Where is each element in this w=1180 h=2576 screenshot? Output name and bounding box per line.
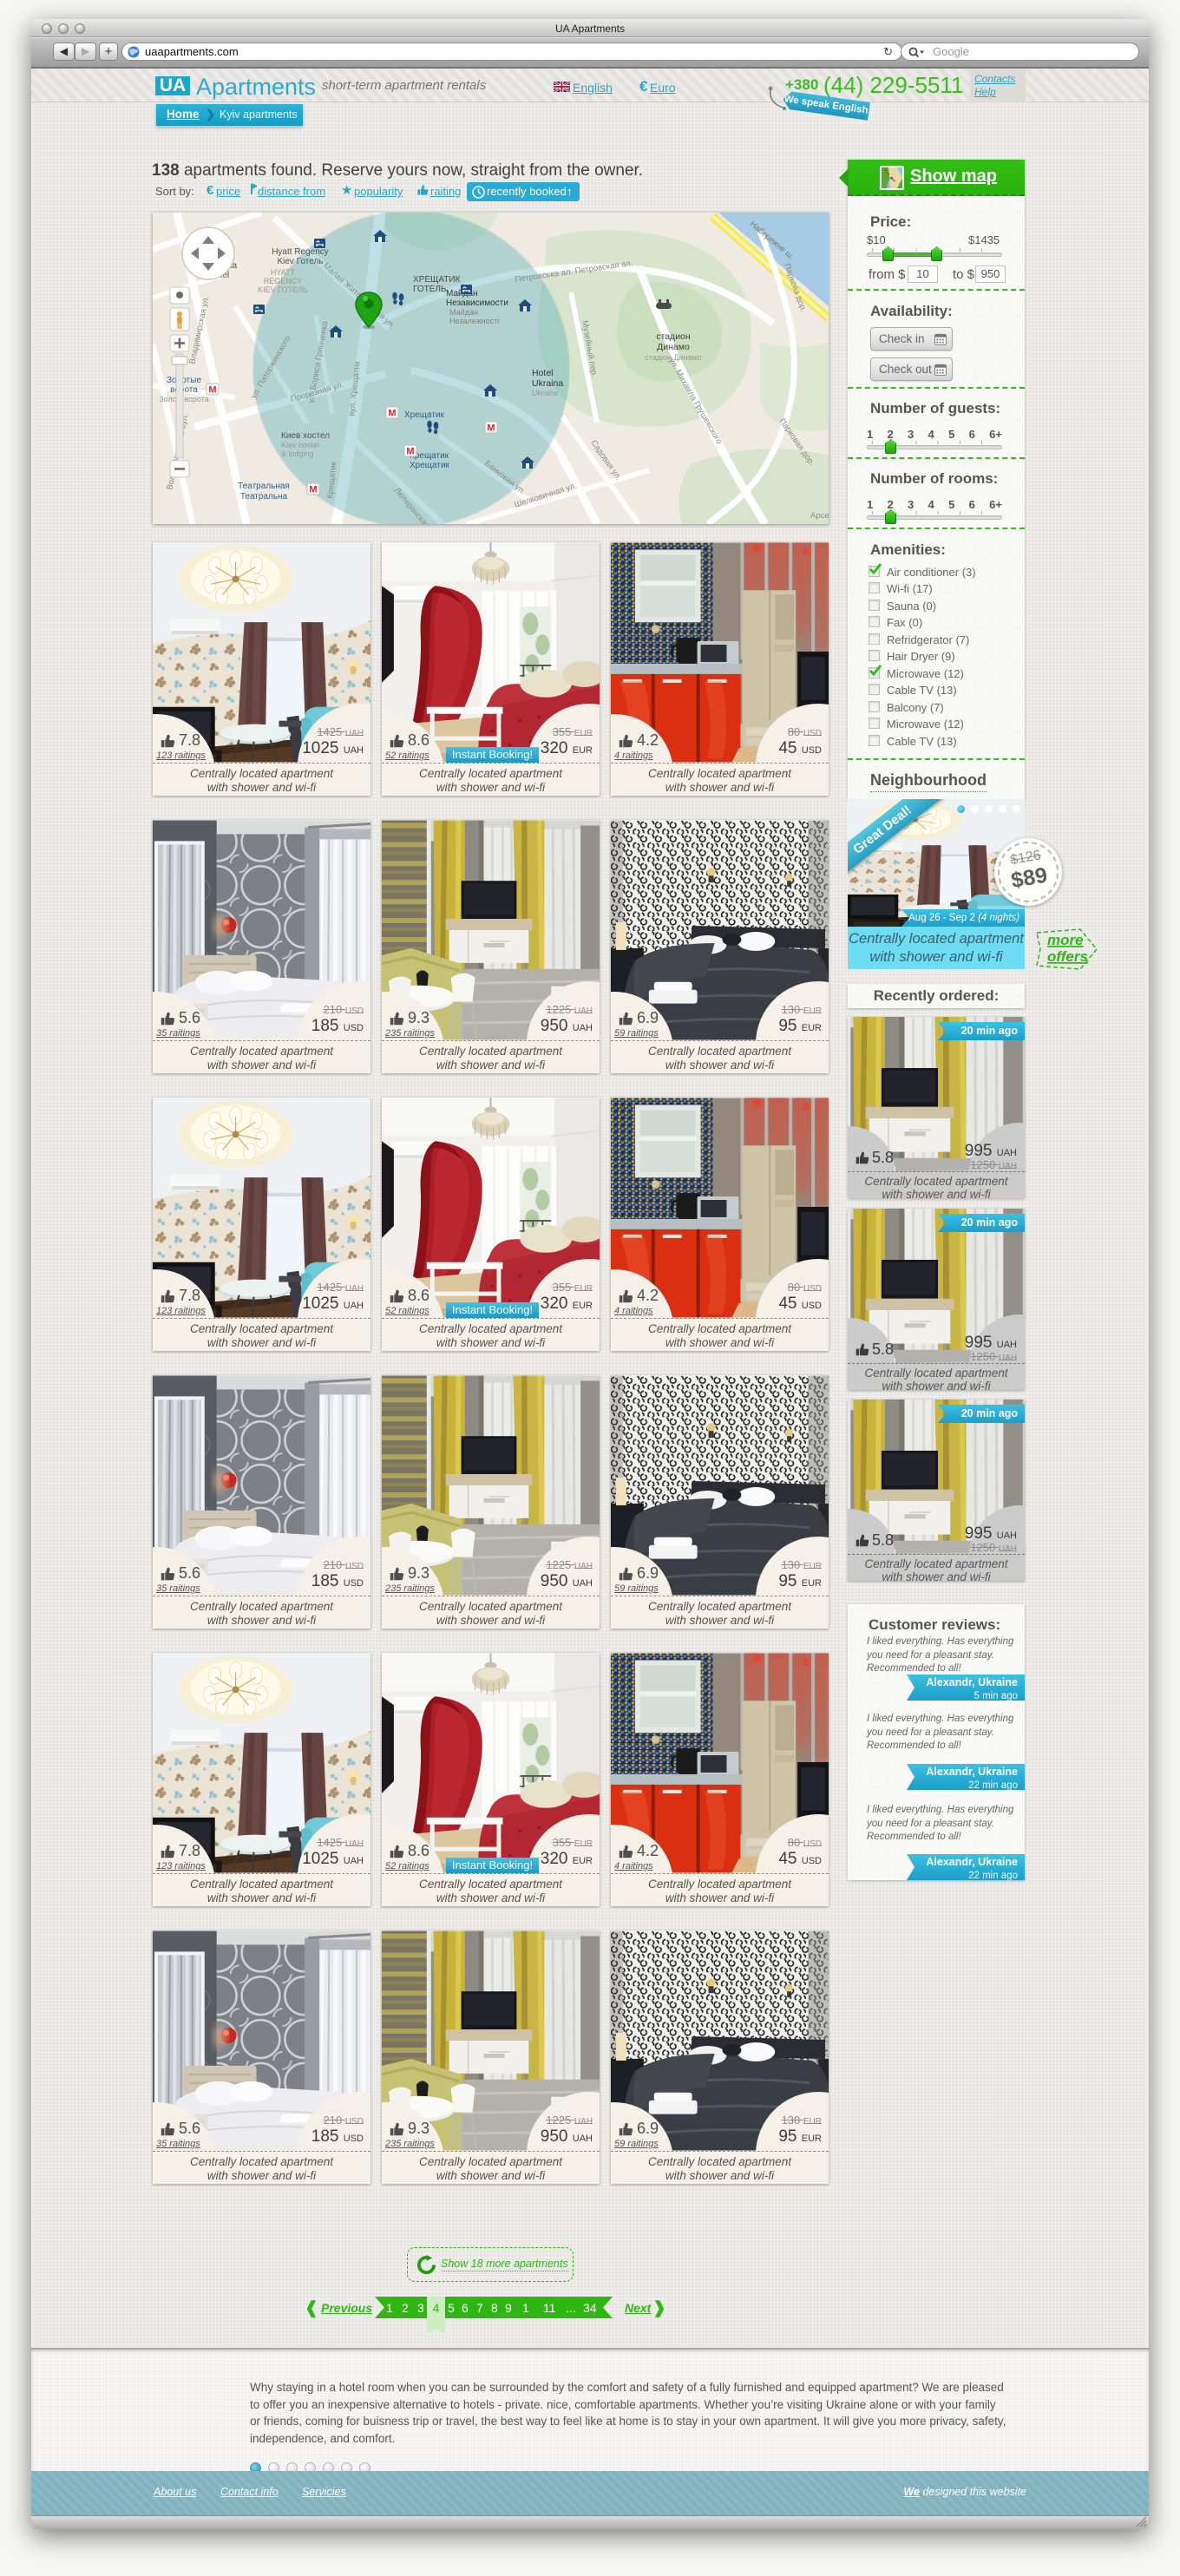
svg-text:KIEV ГОТЕЛЬ: KIEV ГОТЕЛЬ <box>258 285 308 294</box>
svg-text:& lodging: & lodging <box>281 449 314 458</box>
svg-text:Kiev Готель: Kiev Готель <box>277 257 323 266</box>
svg-text:Арсе: Арсе <box>810 511 829 521</box>
svg-text:Майдан: Майдан <box>449 308 478 317</box>
svg-text:Hyatt Regency: Hyatt Regency <box>272 247 329 257</box>
svg-text:Hotel: Hotel <box>532 368 554 378</box>
svg-text:offers: offers <box>1047 948 1088 965</box>
svg-text:Незалежності: Незалежності <box>449 317 499 325</box>
svg-text:Ukraine: Ukraine <box>532 389 559 397</box>
svg-text:Независимости: Независимости <box>446 298 508 308</box>
svg-text:Динамо: Динамо <box>657 342 690 352</box>
svg-text:Золоті ворота: Золоті ворота <box>159 395 209 403</box>
svg-text:Хрещатик: Хрещатик <box>410 461 450 470</box>
svg-text:REGENCY: REGENCY <box>264 277 303 285</box>
svg-text:Театральна: Театральна <box>240 492 288 501</box>
svg-text:стадіон Динамо: стадіон Динамо <box>645 353 702 362</box>
svg-text:Киев хостел: Киев хостел <box>281 431 330 441</box>
svg-text:ХРЕЩАТИК: ХРЕЩАТИК <box>413 275 461 285</box>
svg-text:more: more <box>1047 932 1084 948</box>
svg-text:Kiev hostel: Kiev hostel <box>281 441 319 449</box>
svg-text:ГОТЕЛЬ: ГОТЕЛЬ <box>413 285 447 294</box>
svg-text:HYATT: HYATT <box>271 268 296 277</box>
svg-text:Золотые: Золотые <box>167 376 201 385</box>
svg-text:стадион: стадион <box>656 331 691 342</box>
svg-text:Ukraina: Ukraina <box>532 378 563 389</box>
svg-text:ворота: ворота <box>170 385 198 395</box>
svg-text:Театральная: Театральная <box>238 482 290 491</box>
svg-text:Хрещатик: Хрещатик <box>404 410 445 420</box>
